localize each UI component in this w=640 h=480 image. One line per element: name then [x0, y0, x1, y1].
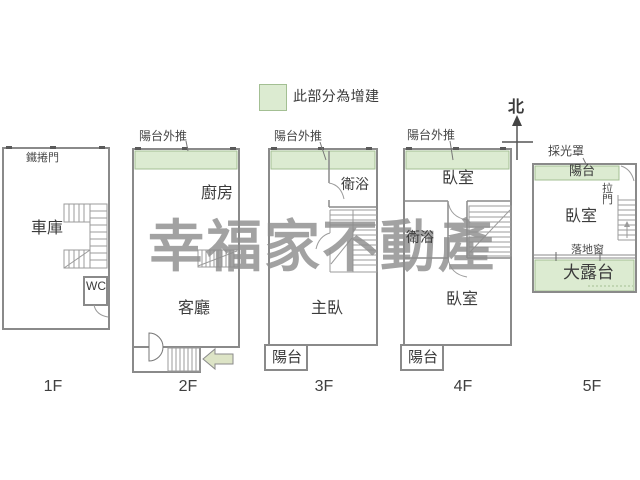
label-kitchen: 廚房 [201, 185, 233, 203]
floor-label-2f: 2F [173, 378, 203, 396]
label-living-room: 客廳 [178, 300, 210, 318]
label-bedroom-lower-4f: 臥室 [446, 291, 478, 309]
floor-2f-addition-strip [135, 151, 237, 169]
floorplan-canvas: 幸福家不動產 此部分為增建 北 鐵捲門 車庫 WC 1F 陽台外推 廚房 客廳 … [0, 0, 640, 480]
label-balcony-3f: 陽台 [272, 349, 302, 366]
label-master-bedroom: 主臥 [311, 300, 343, 318]
label-wc: WC [86, 280, 106, 294]
annotation-balcony-pushout-2f: 陽台外推 [139, 130, 187, 144]
floor-label-5f: 5F [577, 378, 607, 396]
agency-watermark: 幸福家不動產 [148, 219, 496, 275]
label-bedroom-5f: 臥室 [565, 208, 597, 226]
north-label: 北 [508, 99, 524, 117]
label-bedroom-upper-4f: 臥室 [442, 170, 474, 188]
label-rolling-door: 鐵捲門 [26, 152, 59, 165]
floor-2f-entry-door [149, 333, 163, 361]
annotation-skylight-5f: 採光罩 [548, 145, 584, 159]
legend-addition-label: 此部分為增建 [293, 88, 379, 104]
label-bathroom-3f: 衛浴 [341, 176, 369, 192]
floor-label-1f: 1F [38, 378, 68, 396]
floor-2f-entry-arrow [203, 349, 233, 369]
label-balcony-5f: 陽台 [569, 164, 595, 179]
floor-label-4f: 4F [448, 378, 478, 396]
floor-4f-addition-strip [406, 151, 509, 169]
floor-3f-addition-strip [271, 151, 375, 169]
label-sliding-door: 拉門 [602, 184, 615, 206]
label-terrace: 大露台 [563, 263, 614, 283]
annotation-balcony-pushout-3f: 陽台外推 [274, 130, 322, 144]
label-balcony-4f: 陽台 [408, 349, 438, 366]
floor-5f-stairs [618, 195, 635, 240]
label-bathroom-4f: 衛浴 [406, 229, 434, 245]
legend-addition-swatch [259, 84, 287, 111]
floor-1f-stairs [64, 204, 107, 268]
label-french-window: 落地窗 [571, 244, 604, 257]
annotation-balcony-pushout-4f: 陽台外推 [407, 129, 455, 143]
floor-label-3f: 3F [309, 378, 339, 396]
label-garage: 車庫 [31, 220, 63, 238]
